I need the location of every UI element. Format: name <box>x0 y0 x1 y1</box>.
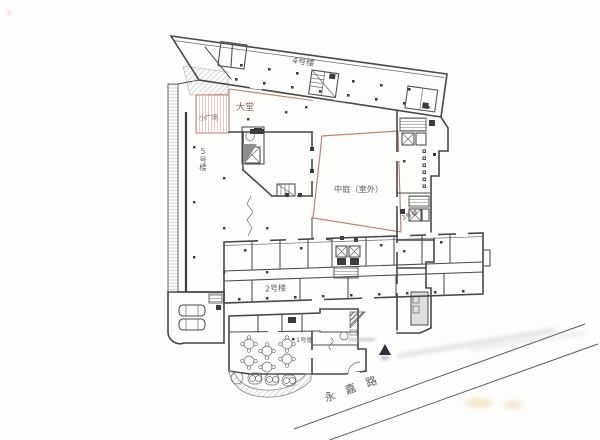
plaza: 小广场 <box>196 95 229 133</box>
plaza-label: 小广场 <box>199 113 218 122</box>
blurred-annotation <box>347 338 375 341</box>
building-5-label: 5号楼 <box>198 147 207 172</box>
building-1-label: 1号楼 <box>296 335 314 344</box>
floorplan-photo: 4号楼 小广场 大堂 5号楼 <box>0 0 600 440</box>
atrium-label: 中庭（室外） <box>334 184 383 194</box>
building-2-label: 2号楼 <box>265 283 286 294</box>
floorplan-drawing: 4号楼 小广场 大堂 5号楼 <box>0 0 600 440</box>
lobby-label: 大堂 <box>236 101 254 113</box>
